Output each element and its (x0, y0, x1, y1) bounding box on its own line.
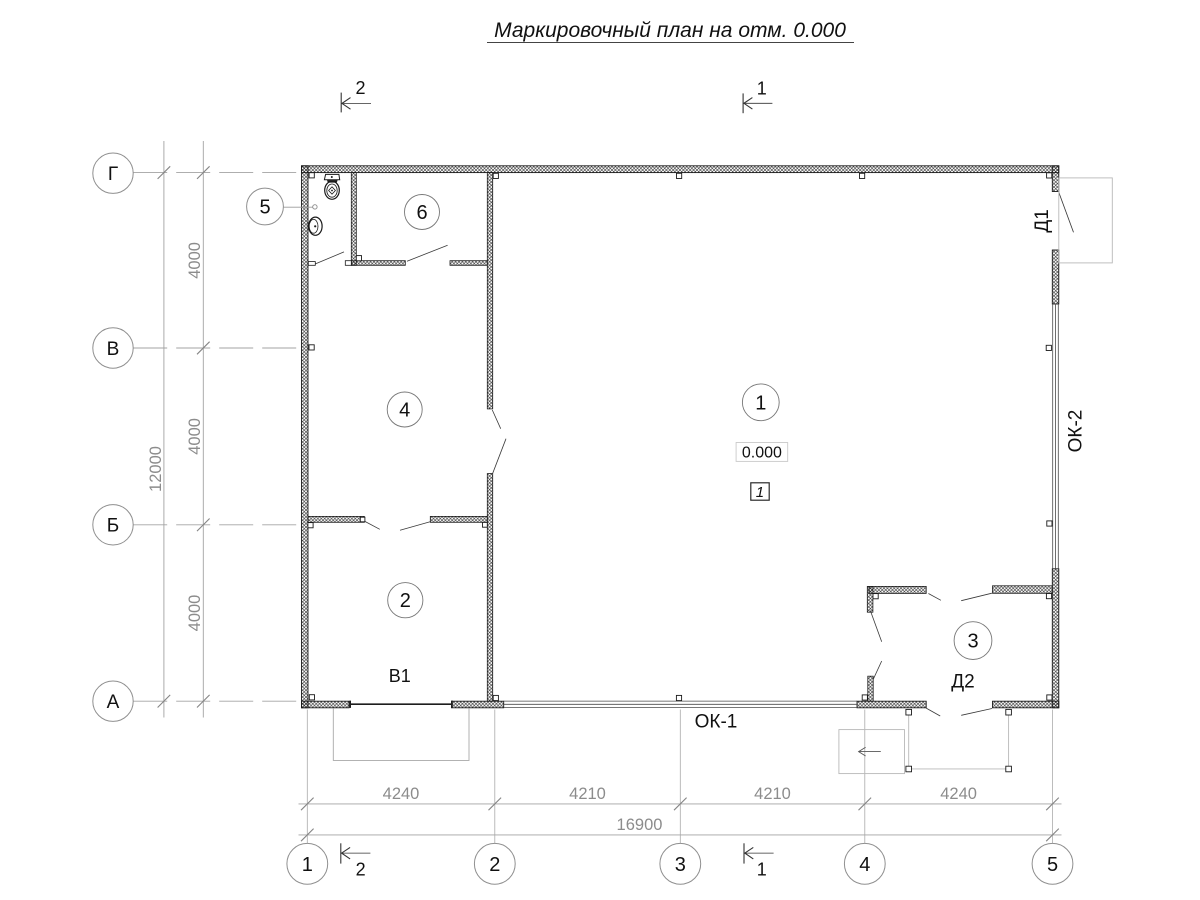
svg-text:Б: Б (107, 516, 119, 537)
svg-text:4: 4 (859, 854, 870, 876)
svg-text:А: А (107, 692, 120, 713)
svg-text:В: В (107, 339, 120, 360)
svg-text:Д1: Д1 (1032, 209, 1053, 232)
svg-text:3: 3 (967, 631, 978, 653)
svg-text:1: 1 (755, 392, 766, 414)
svg-text:Г: Г (108, 164, 118, 185)
svg-text:5: 5 (259, 196, 270, 218)
svg-text:4240: 4240 (940, 785, 977, 803)
svg-text:ОК-1: ОК-1 (695, 711, 738, 732)
svg-text:Маркировочный план на отм. 0.0: Маркировочный план на отм. 0.000 (494, 19, 846, 42)
svg-text:1: 1 (757, 859, 767, 879)
svg-text:1: 1 (302, 854, 313, 876)
svg-text:12000: 12000 (147, 446, 165, 492)
svg-text:6: 6 (416, 202, 427, 224)
svg-text:2: 2 (489, 854, 500, 876)
svg-text:1: 1 (756, 484, 764, 501)
svg-text:4210: 4210 (754, 785, 791, 803)
svg-text:4000: 4000 (186, 242, 204, 279)
svg-text:5: 5 (1047, 854, 1058, 876)
svg-text:3: 3 (675, 854, 686, 876)
svg-text:В1: В1 (389, 666, 411, 686)
svg-text:4240: 4240 (383, 785, 420, 803)
svg-text:2: 2 (400, 590, 411, 612)
svg-text:0.000: 0.000 (742, 445, 782, 462)
svg-text:16900: 16900 (617, 816, 663, 834)
svg-text:4210: 4210 (569, 785, 606, 803)
svg-text:4000: 4000 (186, 418, 204, 455)
svg-text:4: 4 (399, 400, 410, 422)
svg-text:1: 1 (757, 78, 767, 98)
svg-text:ОК-2: ОК-2 (1066, 410, 1087, 453)
svg-text:4000: 4000 (186, 595, 204, 632)
svg-text:Д2: Д2 (951, 671, 974, 692)
svg-text:2: 2 (356, 859, 366, 879)
svg-text:2: 2 (355, 78, 365, 98)
